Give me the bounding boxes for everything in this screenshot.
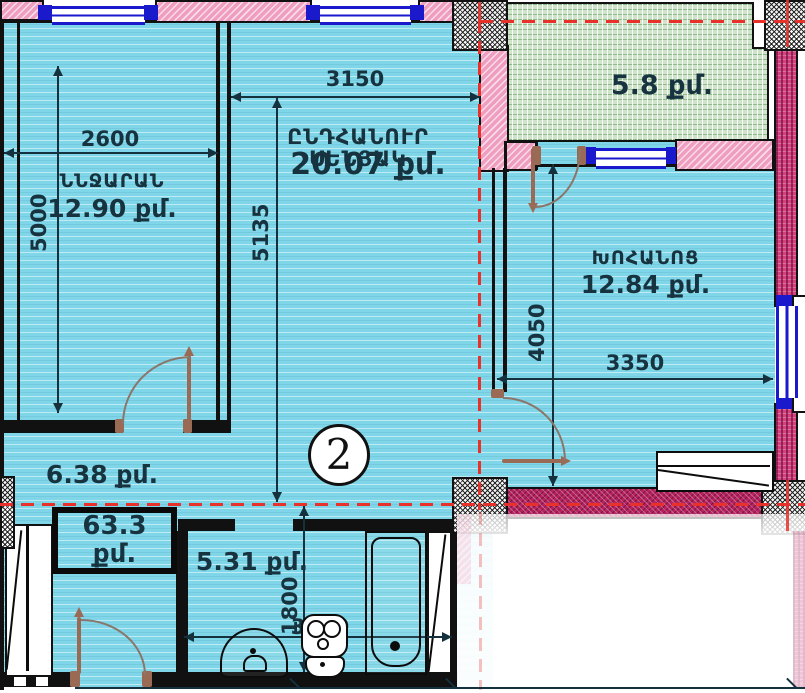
dim-arrow [272,98,282,108]
dim-label-living-depth: 5135 [250,185,272,280]
bathroom-top-wall-right [293,519,457,531]
left-wall-outer [0,20,4,478]
bathtub-drain-icon [390,641,400,651]
red-column-mark-left [478,2,481,20]
dim-arrow [53,66,63,76]
bedroom-partition-line-a [216,23,220,422]
bedroom-partition-line-b [227,23,231,422]
dim-arrow [208,148,218,158]
kitchen-window [596,148,666,169]
unit-number: 2 [326,434,353,476]
dim-line-living-width [231,96,480,98]
red-axis-horizontal [0,503,805,506]
faded-wall-left [457,514,471,584]
dim-arrow [231,92,241,102]
column-top-right [764,0,805,51]
dim-arrow [548,476,558,486]
bathroom-left-wall [176,531,188,676]
right-wall-upper [774,45,798,307]
total-area-label: 63.3 քմ. [58,513,171,568]
dim-line-bedroom-width [4,152,218,154]
sink-drain-icon [250,648,256,654]
bedroom-bottom-wall-left [4,420,123,433]
dim-arrow [4,148,14,158]
toilet-tank-icon [301,614,348,658]
living-window-jamb-left [306,5,320,20]
column-left-edge [0,476,15,549]
kitchen-name: ԽՈՀԱՆՈՑ [568,249,723,269]
closet-divider [26,526,29,671]
kitchen-counter-line [658,465,770,467]
kitchen-partition-line-a [492,168,495,392]
dim-arrow [53,403,63,413]
red-axis-vertical-faded [479,512,482,690]
bedroom-door-arrow [184,346,194,356]
bedroom-window-jamb-right [144,5,158,20]
dim-arrow [299,506,309,516]
dim-line-bottom [75,687,805,689]
bathroom-area: 5.31 քմ. [192,549,312,575]
bedroom-name: ՆՆՋԱՐԱՆ [28,172,196,192]
adjacent-unit-faded [457,514,805,693]
dim-label-bedroom-width: 2600 [55,128,165,150]
unit-number-badge: 2 [308,424,370,486]
living-window-jamb-right [410,5,424,20]
toilet-detail-icon [317,638,329,650]
kitchen-window-jamb-left [586,147,596,164]
bedroom-window [52,6,145,25]
dim-arrow [470,92,480,102]
dim-label-kitchen-depth: 4050 [526,285,548,380]
entrance-door-arrow [74,607,84,617]
dim-line-bedroom-depth [57,66,59,413]
balcony-area: 5.8 քմ. [597,72,727,100]
red-column-mark-mid [786,480,789,531]
toilet-drain-icon [320,662,325,667]
dim-arrow [272,492,282,502]
balcony-wall-right [675,139,774,171]
toilet-detail-icon [323,620,341,638]
dim-arrow [497,374,507,384]
left-wall-lower [0,545,4,690]
kitchen-partition-line-b [503,168,507,392]
bathroom-top-wall-left [178,519,235,531]
toilet-bowl-icon [305,656,345,678]
dim-arrow [184,632,194,642]
red-column-mark-top [786,0,789,47]
left-wall-inner [17,23,20,422]
sink-faucet-icon [243,655,267,672]
red-axis-balcony [480,20,805,23]
faded-wall-right [793,531,805,689]
total-area-box: 63.3 քմ. [52,507,177,574]
hallway-area: 6.38 քմ. [42,462,162,488]
floor-plan: 2600 5000 3150 5135 4050 3350 1800 3000 … [0,0,805,693]
dim-label-living-width: 3150 [300,68,410,90]
bedroom-window-jamb-left [38,5,52,20]
right-window-jamb-top [776,295,792,306]
living-window [320,6,411,25]
kitchen-window-jamb-right [666,147,676,164]
dim-arrow [763,374,773,384]
dim-label-kitchen-width: 3350 [585,352,685,374]
right-window-jamb-bottom [776,398,792,409]
living-room-area: 20.07 քմ. [262,149,474,181]
right-window [776,306,798,398]
dim-arrow [442,632,452,642]
top-wall-segment-mid [155,0,312,23]
bedroom-area: 12.90 քմ. [28,196,196,222]
kitchen-area: 12.84 քմ. [558,272,733,298]
